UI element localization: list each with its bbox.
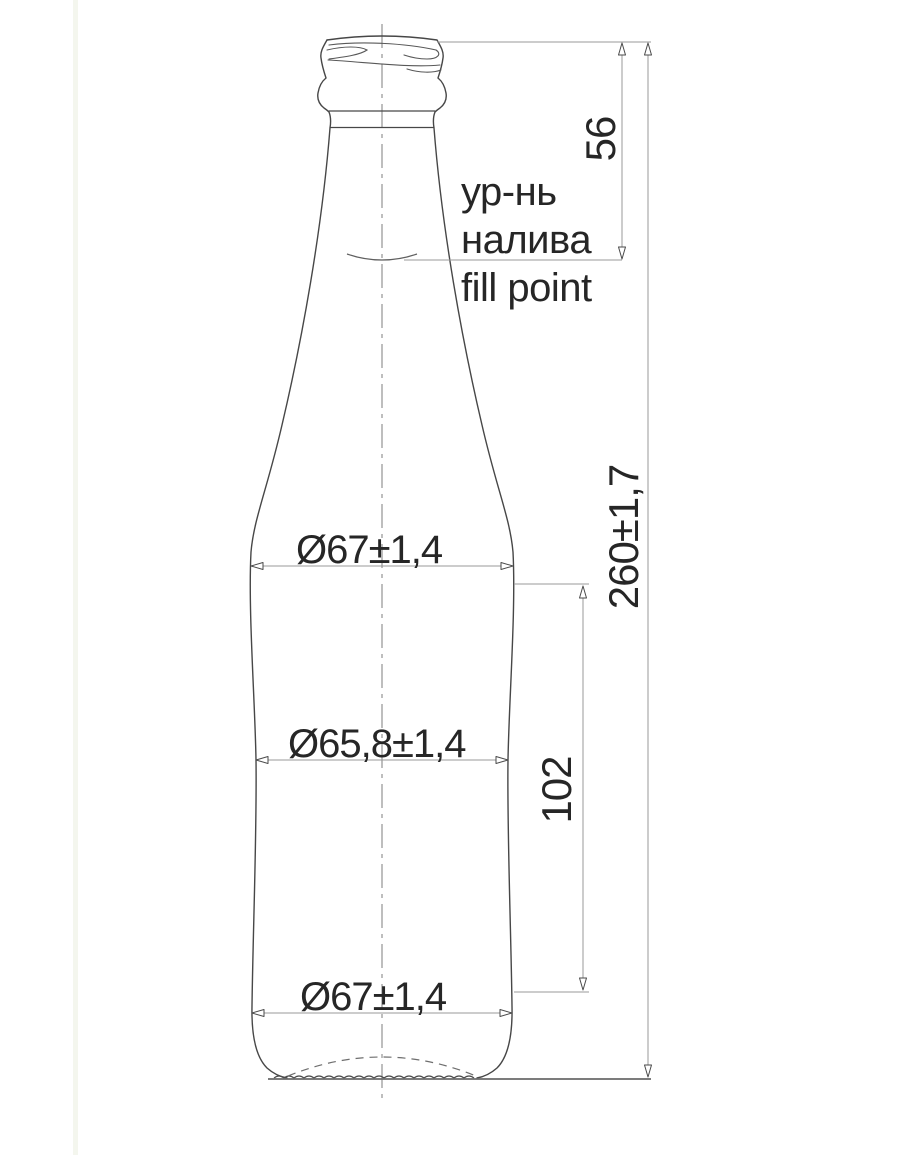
scan-artifact-strip (73, 0, 78, 1155)
dim-label-shoulder-diameter: Ø67±1,4 (296, 530, 442, 570)
arrow-102-up (580, 586, 587, 598)
fill-level-label-ru-line1: ур-нь (461, 168, 592, 216)
arrow-56-up (619, 43, 626, 55)
dim-label-base-diameter: Ø67±1,4 (300, 977, 446, 1017)
arrow-dia-mid-left (256, 757, 268, 764)
fill-point-annotation: ур-нь налива fill point (461, 168, 592, 312)
arrow-260-down (645, 1065, 652, 1077)
arrow-102-down (580, 978, 587, 990)
thread-loop-left (327, 47, 367, 59)
arrow-dia-top-left (251, 563, 263, 570)
arrow-dia-bot-left (252, 1010, 264, 1017)
bottle-drawing-svg (0, 0, 910, 1155)
dim-label-overall-height: 260±1,7 (603, 437, 645, 637)
base-knurl-line (274, 1076, 474, 1078)
thread-stub-right (407, 69, 441, 72)
arrow-dia-top-right (501, 563, 513, 570)
thread-lines (327, 43, 441, 72)
arrow-260-up (645, 43, 652, 55)
fill-level-label-en: fill point (461, 264, 592, 312)
arrow-56-down (619, 247, 626, 259)
technical-drawing-page: Ø67±1,4 Ø65,8±1,4 Ø67±1,4 56 260±1,7 102… (0, 0, 910, 1155)
dim-label-waist-diameter: Ø65,8±1,4 (288, 724, 466, 764)
dim-label-lower-body-height: 102 (536, 720, 578, 860)
arrow-dia-mid-right (496, 757, 508, 764)
arrow-dia-bot-right (500, 1010, 512, 1017)
thread-line-2 (328, 60, 440, 66)
thread-hook-1 (404, 50, 439, 59)
fill-level-label-ru-line2: налива (461, 216, 592, 264)
